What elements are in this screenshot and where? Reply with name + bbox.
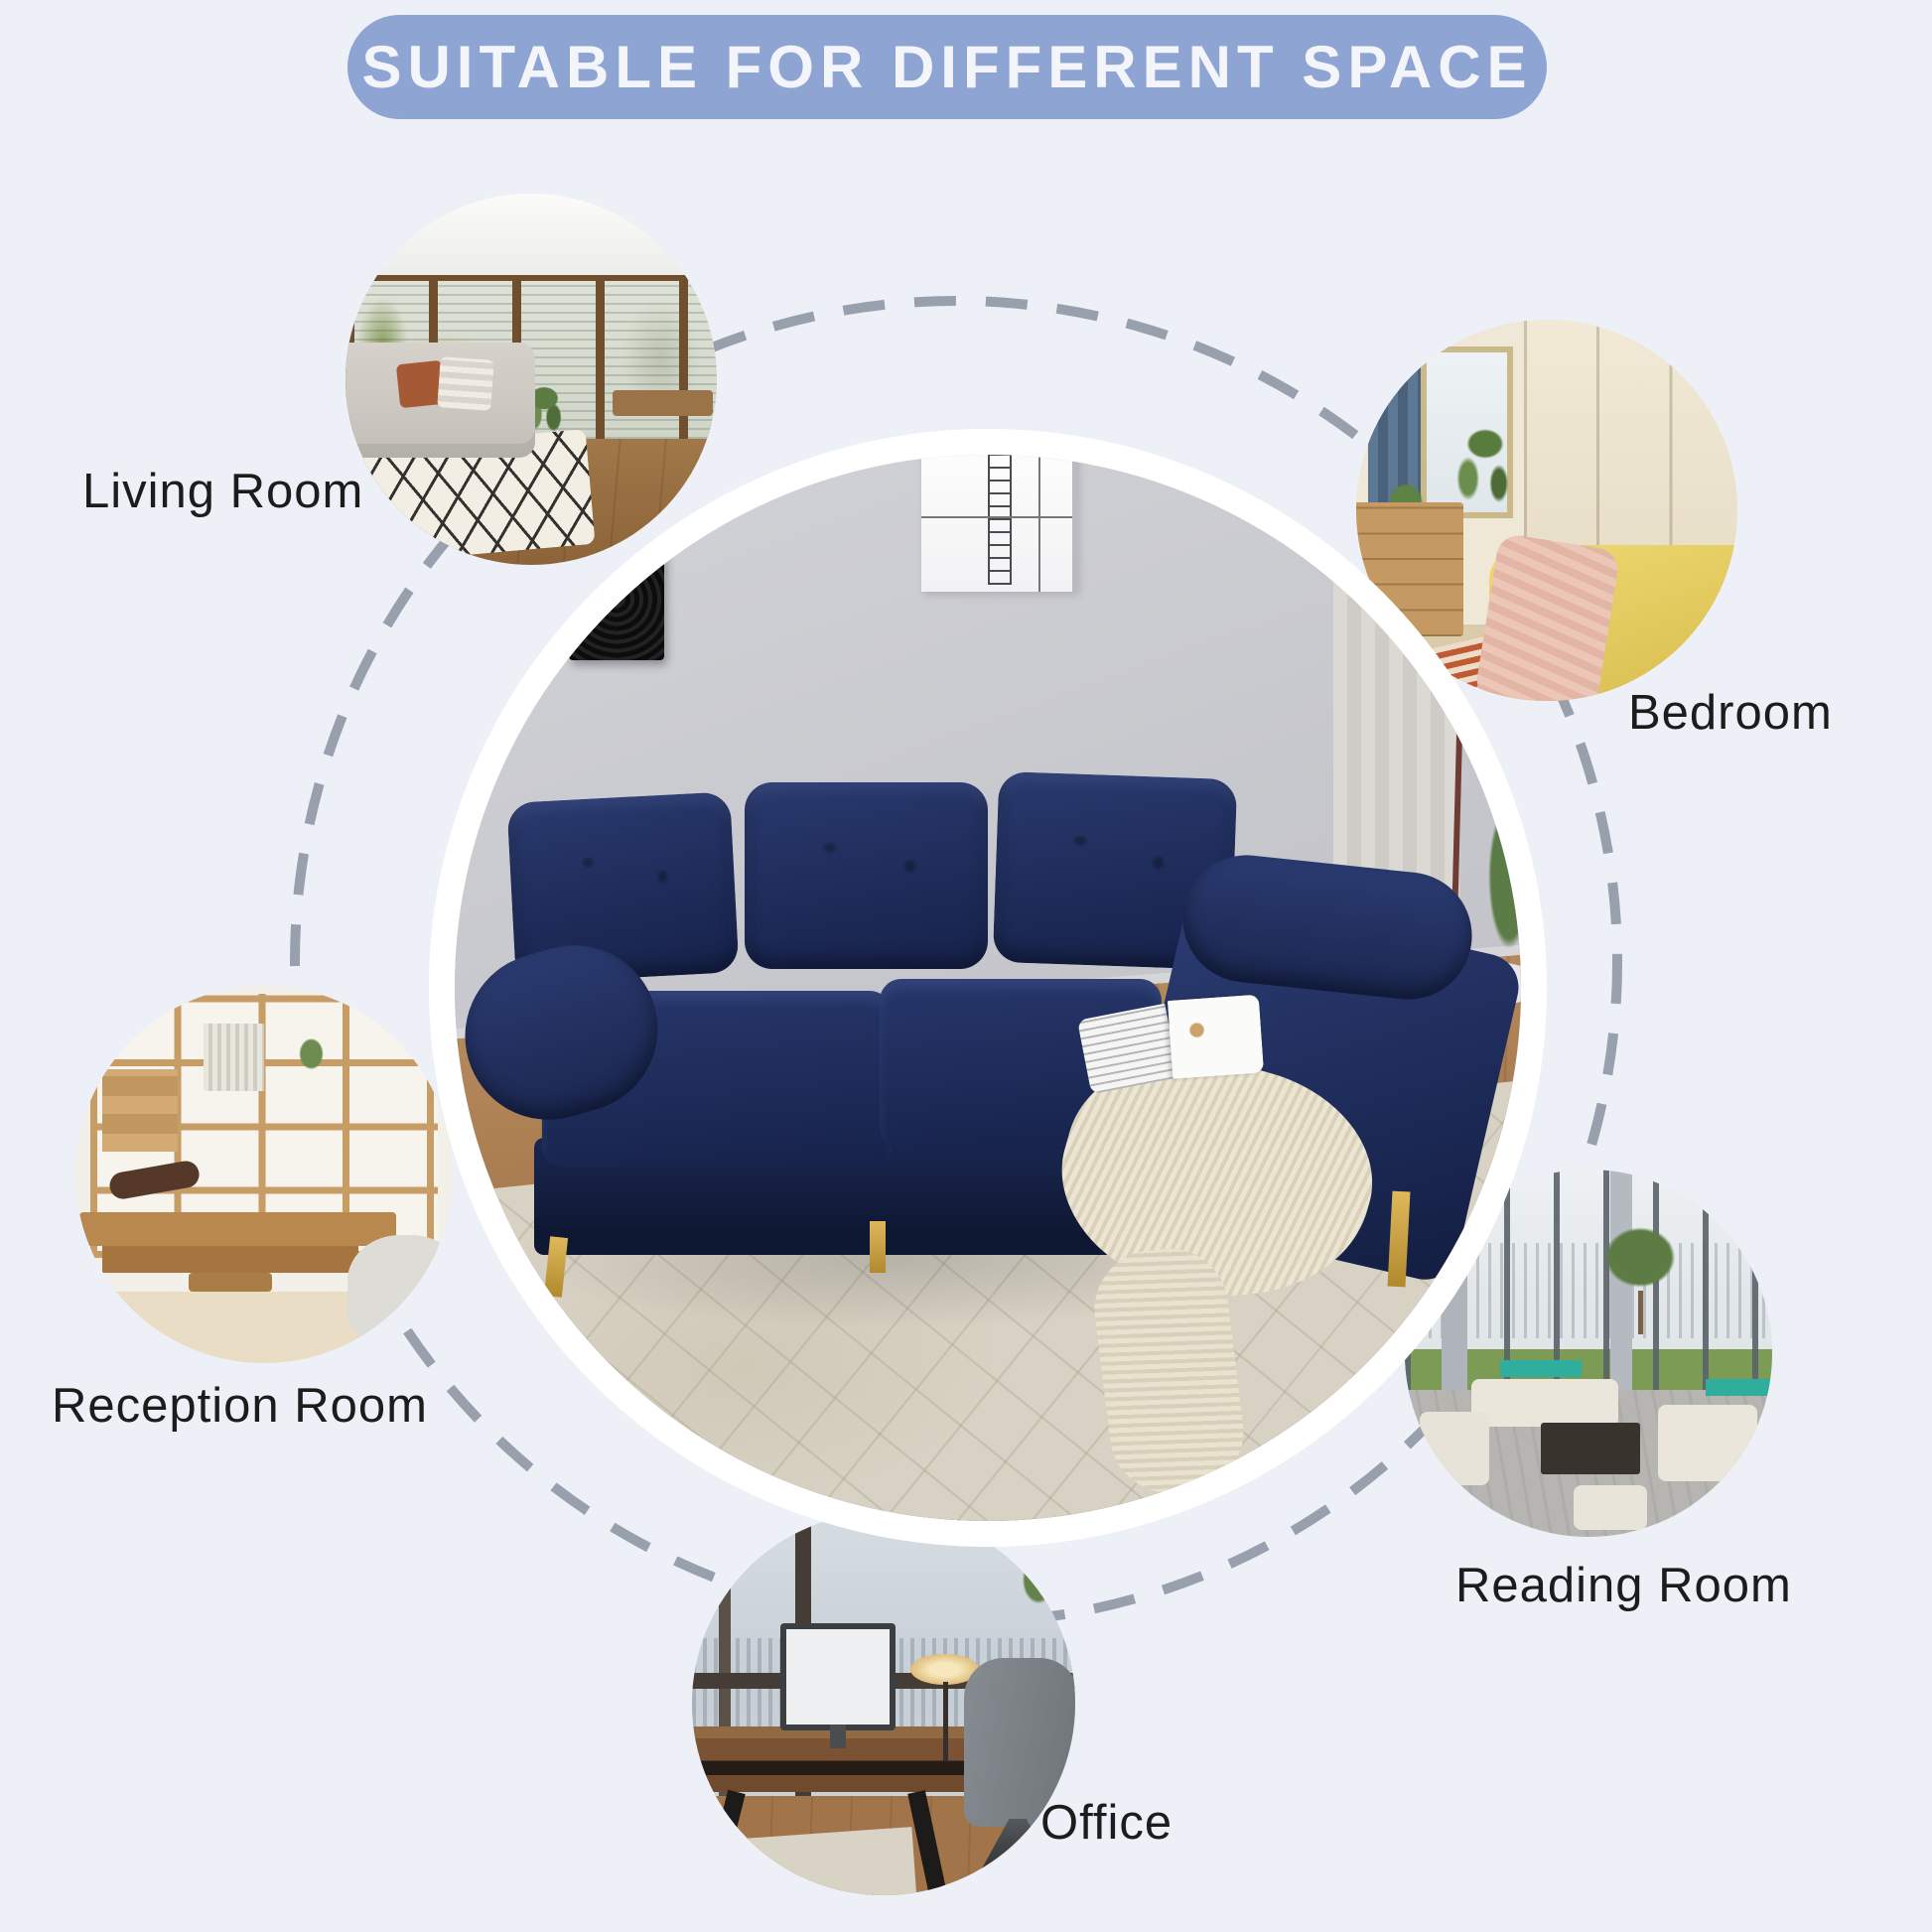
- reception-room-photo: [75, 986, 453, 1363]
- label-reception-room: Reception Room: [52, 1378, 428, 1434]
- reading-room-coffee-table: [1541, 1423, 1640, 1474]
- reading-room-armchair-front: [1574, 1485, 1647, 1529]
- label-bedroom: Bedroom: [1628, 685, 1833, 741]
- office-monitor: [780, 1623, 896, 1731]
- title-banner: SUITABLE FOR DIFFERENT SPACE: [347, 15, 1547, 119]
- office-plant: [1014, 1543, 1063, 1635]
- center-wall-art-ladder-sketch: [921, 429, 1078, 592]
- reception-armchair: [347, 1235, 453, 1337]
- reception-plant: [294, 1032, 328, 1077]
- reception-drawer-boxes: [102, 1069, 178, 1153]
- label-reading-room: Reading Room: [1455, 1558, 1792, 1613]
- living-room-ceiling: [345, 194, 717, 283]
- page-title: SUITABLE FOR DIFFERENT SPACE: [361, 33, 1532, 101]
- label-office: Office: [1040, 1795, 1173, 1851]
- center-wall-art-frame-line: [1038, 429, 1040, 592]
- center-black-wall-art: [569, 549, 664, 660]
- reception-books: [204, 1024, 264, 1091]
- sofa-gold-leg: [870, 1221, 886, 1273]
- living-room-dining-table: [613, 390, 713, 416]
- reading-room-teal-bench: [1706, 1379, 1772, 1396]
- sofa-back-cushion: [745, 782, 988, 969]
- reception-desk: [79, 1212, 396, 1246]
- living-room-sofa: [345, 343, 535, 458]
- reading-room-sofa: [1658, 1405, 1757, 1482]
- product-infographic: SUITABLE FOR DIFFERENT SPACE: [0, 0, 1932, 1932]
- reception-chair: [189, 1273, 272, 1292]
- office-photo: [692, 1512, 1075, 1895]
- label-living-room: Living Room: [82, 464, 363, 519]
- center-sofa-photo: [429, 429, 1547, 1547]
- reading-room-tree: [1588, 1213, 1692, 1323]
- reception-desk-front: [102, 1246, 358, 1273]
